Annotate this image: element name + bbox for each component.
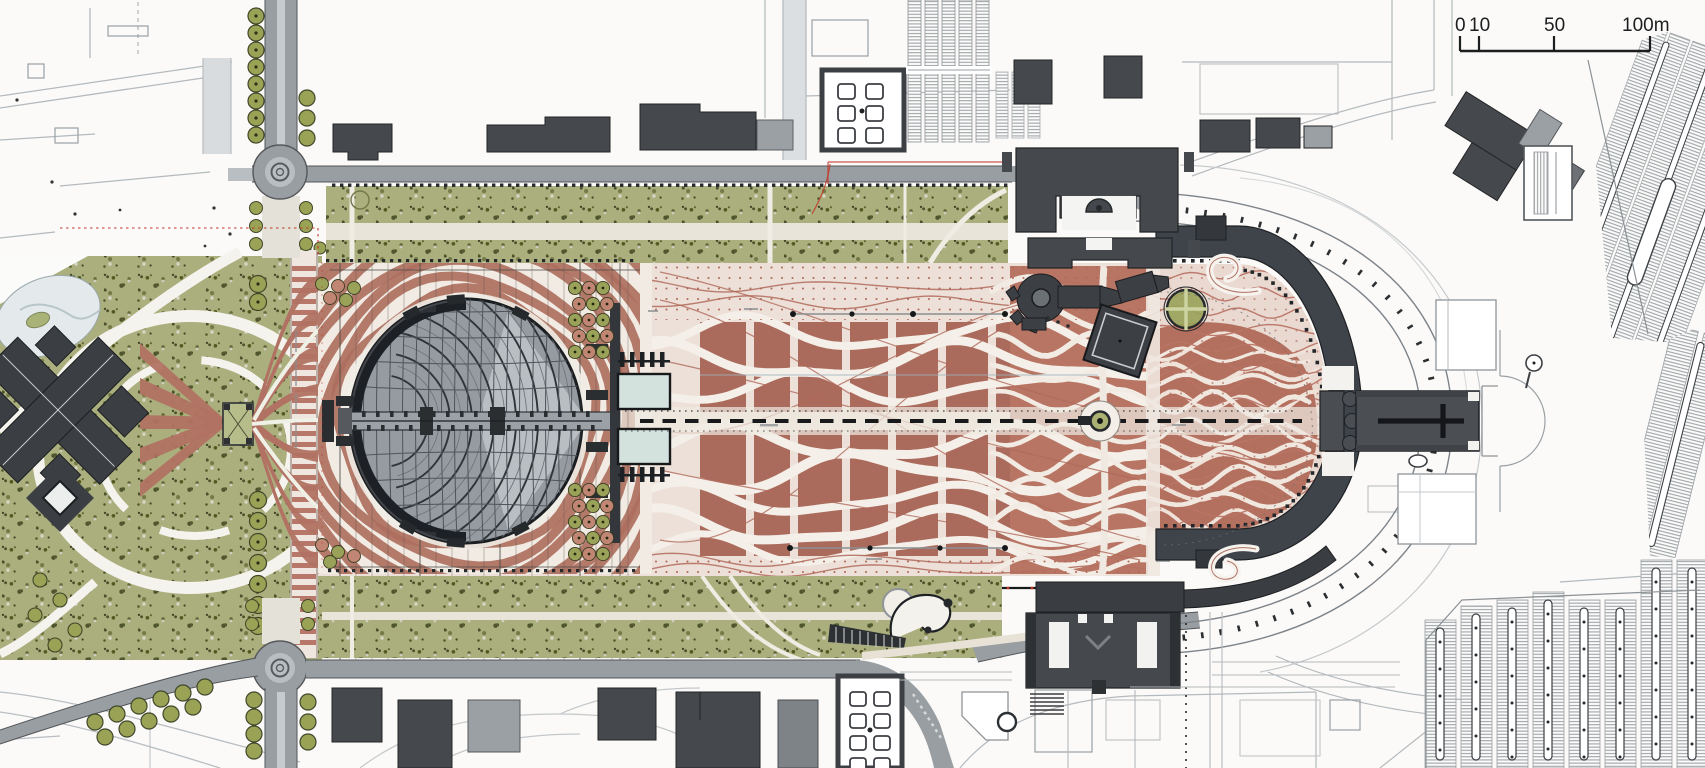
- svg-text:100m: 100m: [1622, 15, 1670, 36]
- svg-text:0: 0: [1455, 15, 1466, 36]
- svg-text:10: 10: [1469, 15, 1490, 36]
- svg-text:50: 50: [1544, 15, 1565, 36]
